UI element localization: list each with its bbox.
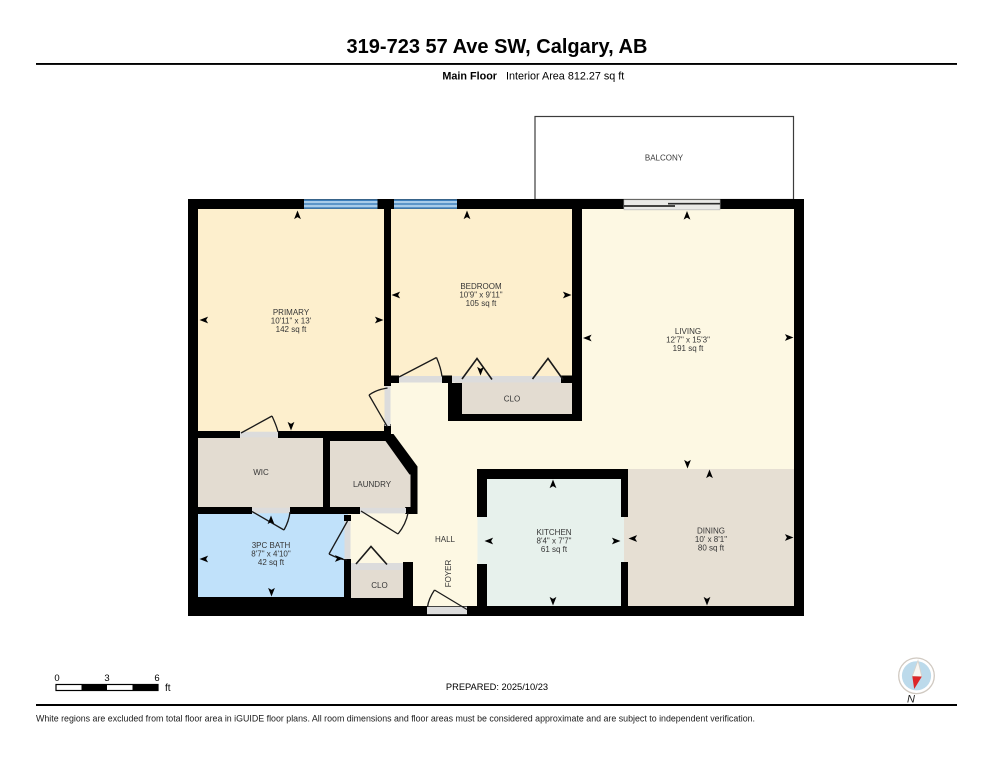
svg-text:CLO: CLO <box>504 395 520 404</box>
svg-text:191 sq ft: 191 sq ft <box>673 344 704 353</box>
svg-text:ft: ft <box>165 683 171 694</box>
svg-text:42 sq ft: 42 sq ft <box>258 558 285 567</box>
svg-text:WIC: WIC <box>253 468 269 477</box>
svg-text:LAUNDRY: LAUNDRY <box>353 480 392 489</box>
svg-text:61 sq ft: 61 sq ft <box>541 545 568 554</box>
svg-text:6: 6 <box>154 673 159 684</box>
svg-text:White regions are excluded fro: White regions are excluded from total fl… <box>36 714 755 724</box>
svg-text:80 sq ft: 80 sq ft <box>698 544 725 553</box>
svg-text:FOYER: FOYER <box>444 560 453 588</box>
svg-text:PREPARED: 2025/10/23: PREPARED: 2025/10/23 <box>446 682 548 692</box>
svg-text:105 sq ft: 105 sq ft <box>466 299 497 308</box>
svg-text:0: 0 <box>54 673 59 684</box>
svg-text:Main Floor: Main Floor <box>442 71 497 83</box>
svg-text:BALCONY: BALCONY <box>645 154 684 163</box>
svg-text:319-723 57 Ave SW, Calgary, AB: 319-723 57 Ave SW, Calgary, AB <box>347 36 648 58</box>
svg-text:Interior Area 812.27 sq ft: Interior Area 812.27 sq ft <box>506 71 624 83</box>
svg-text:CLO: CLO <box>371 581 387 590</box>
svg-text:3: 3 <box>104 673 109 684</box>
svg-text:HALL: HALL <box>435 535 456 544</box>
svg-text:142 sq ft: 142 sq ft <box>276 325 307 334</box>
svg-text:N: N <box>907 694 915 706</box>
